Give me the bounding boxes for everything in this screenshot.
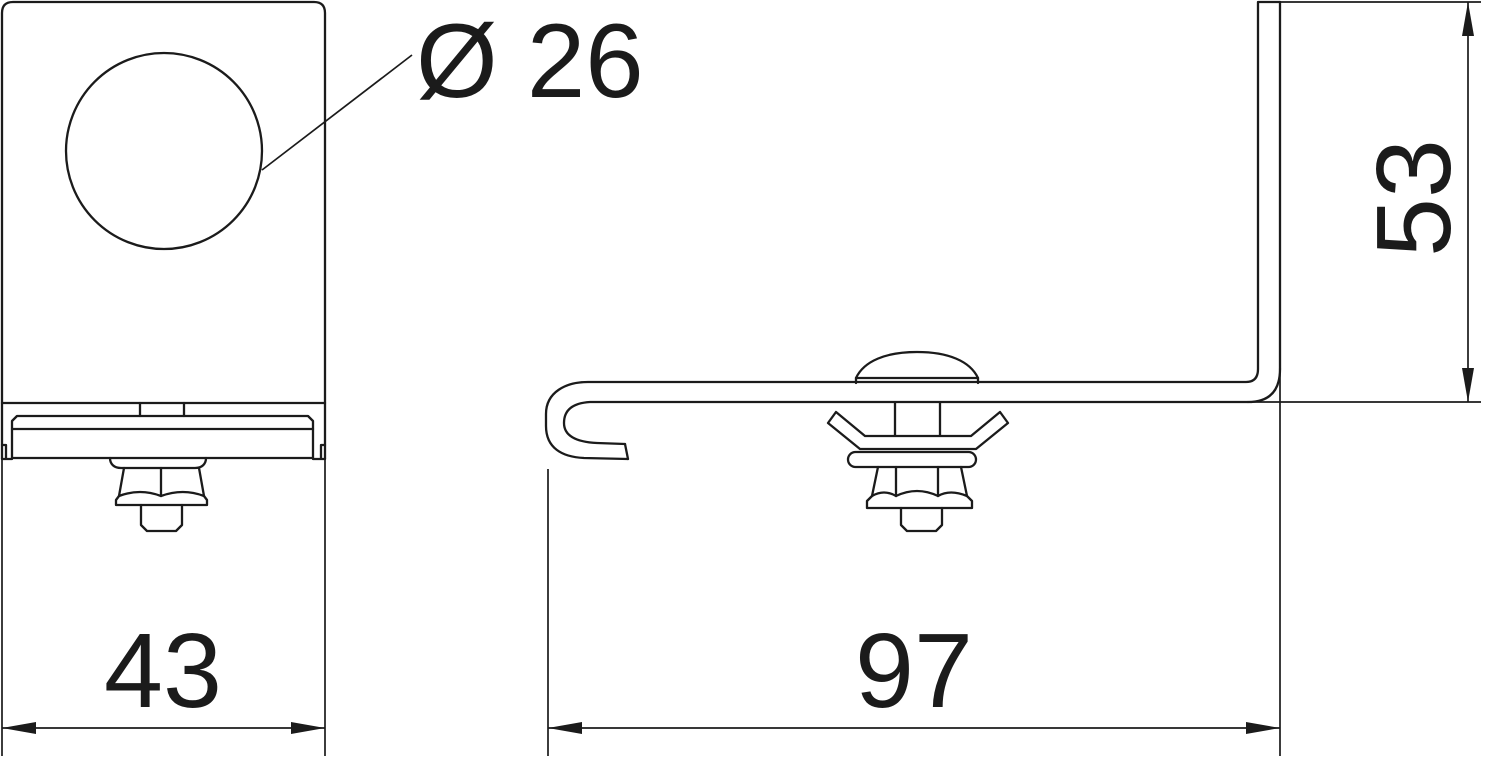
arrowhead-left [548,722,582,734]
arrowhead-bottom [1462,368,1474,402]
front-view [2,2,325,531]
arrowhead-top [1462,2,1474,36]
front-hole [66,53,262,249]
side-profile-outer [546,2,1280,459]
front-right-notch [313,445,325,459]
dimension-front-width: 43 [2,459,325,756]
front-bolt-stub [140,403,184,416]
arrowhead-right [291,722,325,734]
side-bolt-stub [895,403,940,435]
side-washer [848,452,976,467]
dimension-side-height: 53 [1248,2,1481,402]
side-claw-washer [828,412,1008,449]
side-hex-nut-chamfer-arcs [872,491,967,496]
side-bend-outer-arc [1248,369,1280,402]
front-clamp-bar [12,416,313,458]
dimension-side-length: 97 [548,369,1280,756]
front-left-notch [2,445,12,459]
technical-drawing-page: Ø 26 43 97 53 [0,0,1500,759]
bracket-dimension-drawing: Ø 26 43 97 53 [0,0,1500,759]
side-view [546,2,1280,531]
arrowhead-left [2,722,36,734]
side-profile-inner [564,402,1248,444]
arrowhead-right [1246,722,1280,734]
dim-hole-diameter-text: Ø 26 [416,3,644,120]
dimension-hole-diameter: Ø 26 [262,3,644,170]
side-bolt-shank [901,508,942,531]
front-plate-outline [2,2,325,459]
dim-side-height-text: 53 [1355,139,1473,257]
front-washer-collar [110,458,206,468]
side-hex-nut [867,467,972,508]
leader-line [262,55,412,170]
front-bolt-shank [141,505,182,531]
side-hook-tip [625,444,628,459]
dim-side-length-text: 97 [855,612,973,730]
dim-front-width-text: 43 [104,612,222,730]
